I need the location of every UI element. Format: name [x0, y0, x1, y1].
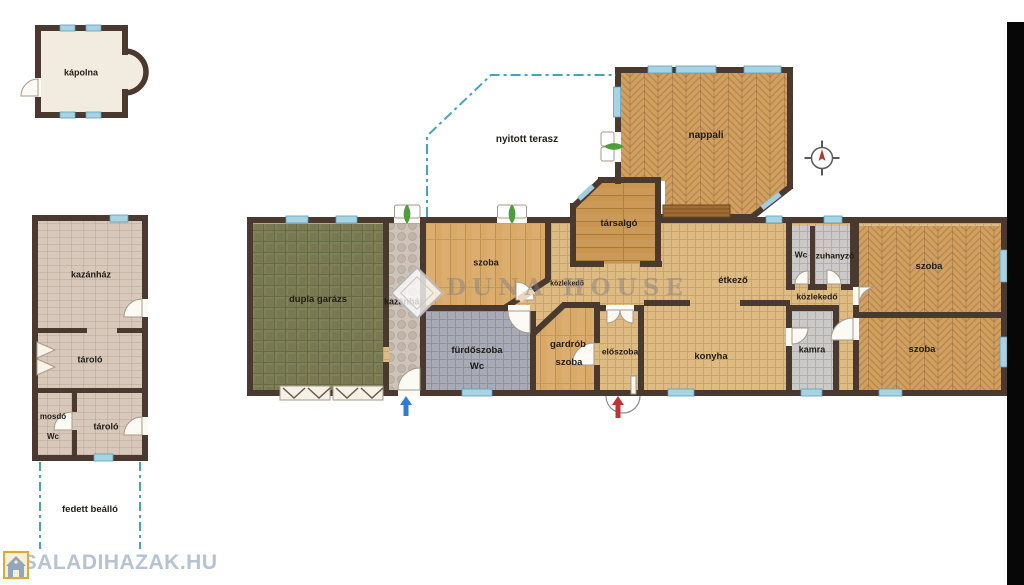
scan-edge: [1007, 22, 1024, 585]
room-label-nyitott-terasz: nyitott terasz: [496, 135, 558, 146]
room-label-gardrob: gardrób: [550, 340, 586, 350]
outbuilding: [32, 215, 148, 461]
room-label-kozlekedo-right: közlekedő: [796, 293, 837, 302]
compass-icon: [805, 141, 840, 176]
room-label-tarolo-lower: tároló: [93, 422, 118, 431]
room-label-furdoszoba-wc: Wc: [470, 362, 484, 372]
room-label-mosdo: mosdó: [40, 413, 66, 421]
room-label-furdoszoba: fürdőszoba: [451, 346, 502, 356]
main-house: [247, 66, 1007, 418]
room-label-tarsalgo: társalgó: [601, 219, 638, 229]
room-label-kamra: kamra: [799, 345, 826, 354]
room-label-wc: Wc: [795, 251, 808, 260]
room-label-kapolna: kápolna: [64, 68, 98, 77]
watermark-text: DUNA HOUSE: [446, 274, 689, 301]
watermark: DUNA HOUSE: [398, 262, 689, 312]
room-label-konyha: konyha: [694, 352, 727, 362]
room-label-eloszoba: előszoba: [602, 348, 638, 357]
room-label-szoba-upper-right: szoba: [916, 262, 943, 272]
room-label-tarolo-upper: tároló: [77, 355, 102, 364]
room-label-gardrob-szoba: szoba: [556, 358, 583, 368]
room-label-kazanhaz-outbuilding: kazánház: [71, 270, 111, 279]
dunahouse-diamond-icon: [390, 266, 444, 320]
house-icon: [3, 551, 29, 579]
room-label-zuhanyzo: zuhanyzó: [816, 252, 855, 261]
site-logo: CSALADIHAZAK.HU: [3, 551, 218, 575]
room-label-fedett-beallo: fedett beálló: [62, 505, 118, 515]
room-label-szoba-lower-right: szoba: [909, 345, 936, 355]
bench: [663, 205, 730, 217]
room-label-mosdo-wc: Wc: [47, 433, 59, 441]
floor-plan: kápolna kazánház tároló mosdó Wc tároló …: [0, 0, 1024, 585]
room-label-dupla-garazs: dupla garázs: [289, 295, 347, 305]
room-label-etkezo: étkező: [718, 276, 748, 286]
main-entrance-arrow-icon: [612, 396, 624, 418]
side-entrance-arrow-icon: [400, 396, 412, 416]
room-label-nappali: nappali: [688, 131, 723, 142]
site-name: CSALADIHAZAK.HU: [7, 551, 218, 575]
